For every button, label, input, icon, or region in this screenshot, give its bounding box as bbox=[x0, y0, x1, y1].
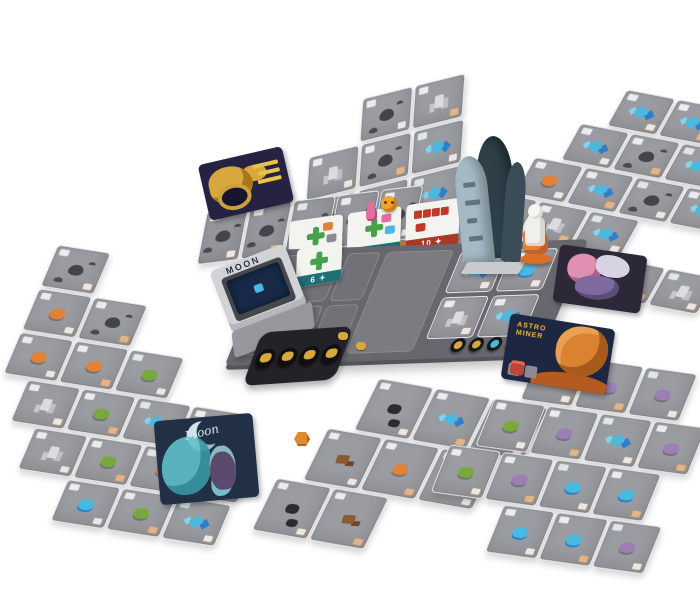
resource-token bbox=[466, 337, 486, 351]
crystal-icon bbox=[385, 225, 395, 235]
face-token bbox=[381, 196, 397, 212]
moon-card bbox=[40, 245, 111, 295]
creature-icon bbox=[323, 222, 333, 232]
ghost-art-card: Moon bbox=[154, 413, 260, 505]
portrait-art bbox=[208, 445, 238, 491]
block-icon bbox=[415, 223, 425, 233]
card-title-lines bbox=[198, 146, 282, 165]
figure-head bbox=[528, 204, 543, 219]
figure-body bbox=[525, 216, 545, 246]
gold-resource-token bbox=[296, 345, 322, 366]
astronaut-standee bbox=[518, 204, 558, 268]
ghost-art bbox=[159, 435, 214, 497]
gold-token bbox=[356, 342, 366, 350]
plus-shape-icon bbox=[310, 250, 328, 272]
gold-resource-token bbox=[318, 343, 344, 364]
standee-base bbox=[520, 254, 552, 264]
creature-icon bbox=[381, 213, 391, 223]
pink-meeple bbox=[366, 206, 377, 221]
gold-resource-token bbox=[274, 346, 300, 367]
pink-art-card bbox=[552, 244, 647, 314]
event-card-title: ASTRO MINER bbox=[515, 321, 547, 341]
robot-art bbox=[509, 360, 525, 376]
gold-resource-token bbox=[252, 348, 278, 369]
rocket-base bbox=[461, 262, 526, 274]
red-blocks-icon bbox=[414, 206, 449, 219]
module-icon bbox=[326, 233, 336, 243]
gold-token bbox=[338, 332, 348, 340]
resource-token bbox=[485, 337, 505, 351]
board-game-photo: 6 ✦ 7 ✦ 10 ✦ 6 ✦ MOON bbox=[0, 0, 700, 614]
